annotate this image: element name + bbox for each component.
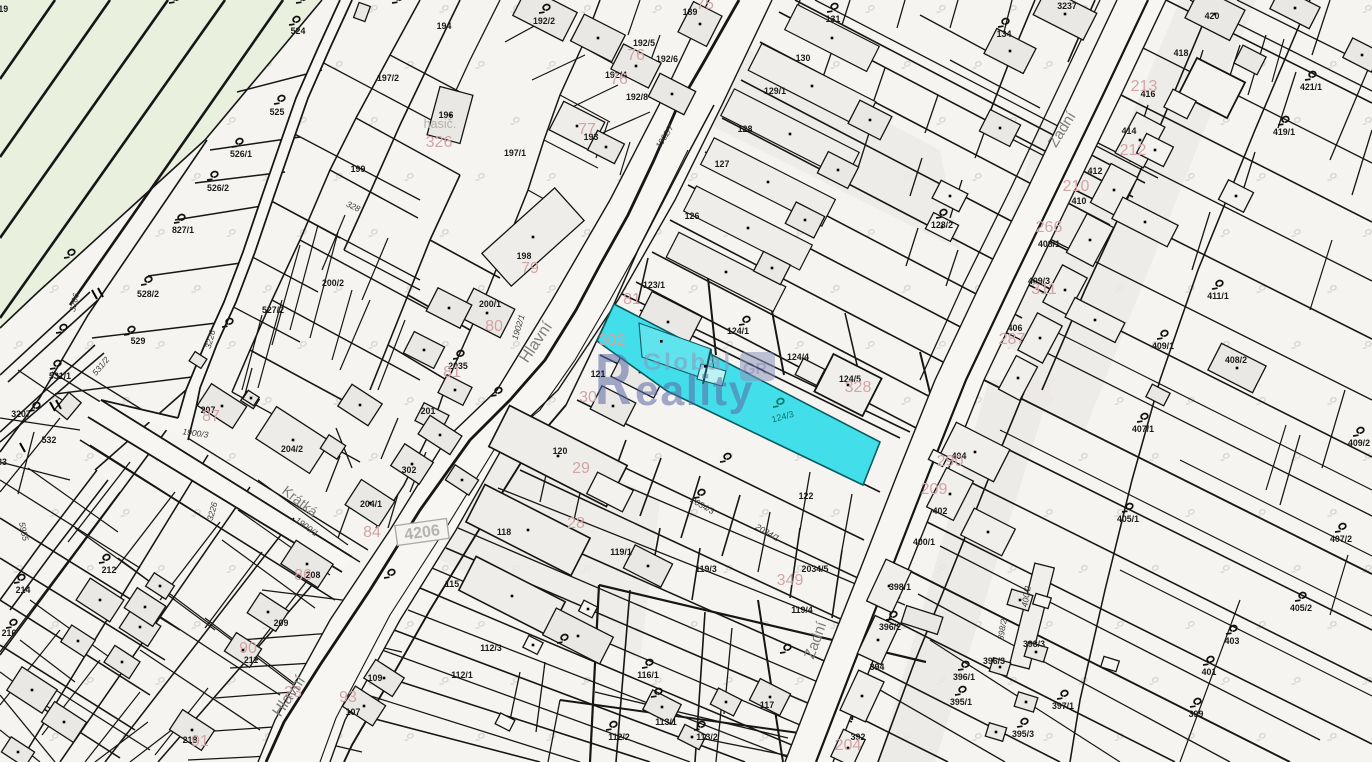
svg-text:29: 29 [572,460,590,477]
svg-text:81: 81 [623,291,641,308]
svg-text:526/1: 526/1 [230,149,252,159]
svg-text:117: 117 [760,700,774,710]
svg-text:130: 130 [796,53,811,63]
svg-text:287: 287 [999,331,1026,348]
svg-text:119/1: 119/1 [610,547,632,557]
svg-text:115: 115 [445,579,459,589]
svg-text:409/2: 409/2 [1348,438,1370,448]
svg-text:402: 402 [933,506,948,516]
svg-text:128/2: 128/2 [931,220,953,230]
svg-text:123/1: 123/1 [643,280,665,290]
svg-text:302: 302 [402,465,417,475]
svg-text:394: 394 [870,662,885,672]
svg-text:419/1: 419/1 [1273,127,1295,137]
svg-text:28: 28 [567,515,585,532]
svg-text:216: 216 [2,628,17,638]
svg-text:/19: /19 [0,4,8,14]
svg-text:409/1: 409/1 [1152,341,1174,351]
svg-text:109: 109 [368,673,383,683]
svg-text:33: 33 [0,457,7,467]
svg-text:90: 90 [239,640,257,657]
svg-text:131: 131 [826,14,841,24]
svg-text:405/1: 405/1 [1117,514,1139,524]
svg-text:266: 266 [1036,219,1063,236]
svg-text:124/4: 124/4 [787,352,809,362]
svg-text:395/3: 395/3 [1012,729,1034,739]
svg-text:197/2: 197/2 [377,73,399,83]
svg-text:214: 214 [16,585,31,595]
svg-text:399: 399 [1189,709,1204,719]
svg-text:210: 210 [1063,178,1090,195]
svg-text:204/1: 204/1 [360,499,382,509]
svg-text:194: 194 [437,21,452,31]
svg-text:524: 524 [291,26,306,36]
svg-text:411/1: 411/1 [1207,291,1229,301]
svg-text:192/6: 192/6 [656,54,678,64]
svg-text:87: 87 [202,408,220,425]
svg-text:527/2: 527/2 [262,305,284,315]
svg-text:401: 401 [1202,667,1217,677]
svg-text:75: 75 [696,0,714,13]
svg-text:400/1: 400/1 [913,537,935,547]
svg-text:531/1: 531/1 [49,371,71,381]
svg-text:200/2: 200/2 [322,278,344,288]
svg-text:212: 212 [102,565,117,575]
svg-text:398/1: 398/1 [889,582,911,592]
svg-text:407/2: 407/2 [1330,534,1352,544]
svg-text:126: 126 [685,211,700,221]
svg-text:414: 414 [1122,126,1137,136]
svg-text:116/1: 116/1 [637,670,659,680]
svg-text:311: 311 [1031,281,1057,298]
svg-text:209: 209 [921,481,948,498]
svg-text:112/3: 112/3 [480,643,502,653]
svg-text:192/8: 192/8 [626,92,648,102]
svg-text:410: 410 [1072,196,1087,206]
svg-text:120: 120 [553,446,568,456]
svg-text:408/1: 408/1 [1038,239,1060,249]
svg-text:30: 30 [579,389,597,406]
svg-text:134: 134 [997,29,1012,39]
svg-text:328: 328 [845,379,872,396]
svg-text:405/2: 405/2 [1290,603,1312,613]
svg-text:81: 81 [443,364,461,381]
svg-text:122: 122 [799,491,814,501]
svg-text:326: 326 [426,134,453,151]
svg-text:84: 84 [363,524,381,541]
svg-text:R: R [595,340,631,420]
svg-text:407/1: 407/1 [1132,424,1154,434]
svg-text:93: 93 [339,689,357,706]
svg-text:408/2: 408/2 [1225,355,1247,365]
svg-text:528/2: 528/2 [137,289,159,299]
svg-text:91: 91 [191,733,209,750]
svg-text:112/2: 112/2 [608,732,630,742]
svg-text:209: 209 [274,618,289,628]
svg-text:204/2: 204/2 [281,444,303,454]
svg-text:112/1: 112/1 [451,670,473,680]
svg-text:397/1: 397/1 [1052,701,1074,711]
svg-text:128: 128 [738,124,753,134]
svg-text:119/3: 119/3 [695,564,717,574]
svg-text:121: 121 [591,369,606,379]
svg-text:eality: eality [635,367,754,415]
svg-text:76: 76 [627,47,645,64]
svg-text:526/2: 526/2 [207,183,229,193]
svg-text:532: 532 [42,435,57,445]
svg-text:827/1: 827/1 [172,225,194,235]
svg-text:2034/5: 2034/5 [802,564,829,574]
svg-text:290: 290 [937,453,964,470]
svg-text:192/2: 192/2 [533,16,555,26]
svg-text:302: 302 [599,332,626,349]
svg-text:129/1: 129/1 [764,86,786,96]
svg-text:197/1: 197/1 [504,148,526,158]
svg-text:86: 86 [294,567,312,584]
svg-text:124/1: 124/1 [727,326,749,336]
svg-text:118: 118 [497,527,511,537]
svg-text:395/1: 395/1 [950,697,972,707]
svg-text:79: 79 [521,260,539,277]
svg-text:77: 77 [578,121,596,138]
svg-text:396/2: 396/2 [879,622,901,632]
svg-text:113/2: 113/2 [696,732,718,742]
svg-text:204: 204 [835,737,862,754]
svg-text:201: 201 [421,406,436,416]
svg-text:403: 403 [1225,636,1240,646]
svg-text:113/1: 113/1 [655,717,677,727]
svg-text:349: 349 [777,572,804,589]
svg-text:107: 107 [346,707,361,717]
svg-text:396/1: 396/1 [953,672,975,682]
svg-text:529: 529 [131,336,146,346]
svg-text:420: 420 [1205,11,1220,21]
svg-text:199: 199 [351,164,366,174]
svg-text:398/3: 398/3 [1023,639,1045,649]
svg-text:3207: 3207 [11,409,31,419]
svg-text:421/1: 421/1 [1300,82,1322,92]
svg-text:119/4: 119/4 [791,605,813,615]
svg-text:76: 76 [610,71,628,88]
svg-text:hasič.: hasič. [424,117,457,131]
svg-text:412: 412 [1088,166,1103,176]
svg-text:200/1: 200/1 [479,299,501,309]
svg-text:212: 212 [1120,142,1147,159]
svg-text:3237: 3237 [1057,1,1077,11]
svg-text:418: 418 [1174,48,1189,58]
svg-text:80: 80 [485,318,503,335]
svg-text:213: 213 [1131,78,1158,95]
svg-text:396/3: 396/3 [983,656,1005,666]
svg-text:127: 127 [715,159,730,169]
svg-text:525: 525 [270,107,285,117]
